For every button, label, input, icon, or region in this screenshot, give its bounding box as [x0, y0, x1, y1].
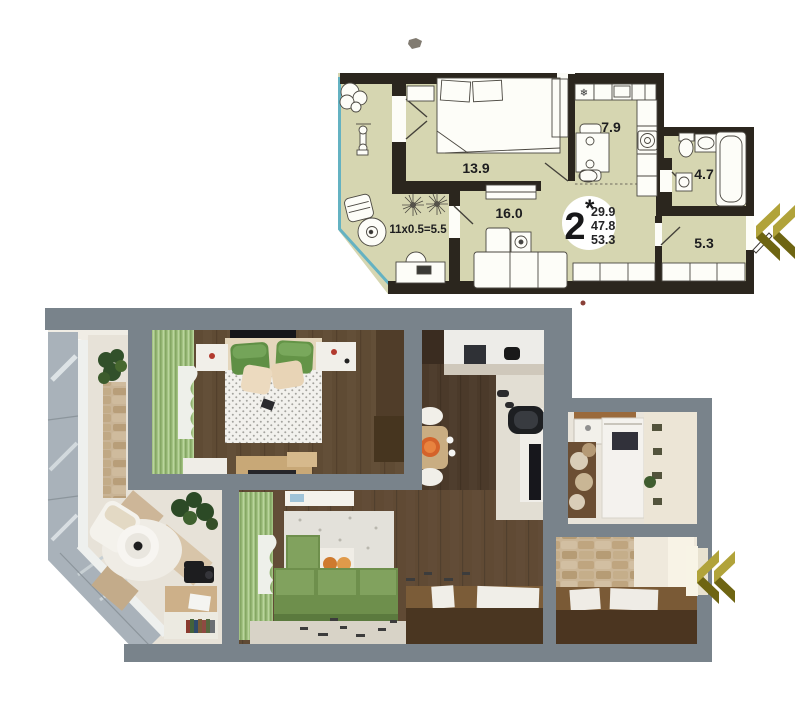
svg-text:7.9: 7.9 — [601, 119, 621, 135]
svg-text:11x0.5=5.5: 11x0.5=5.5 — [389, 224, 447, 236]
svg-text:47.8: 47.8 — [591, 219, 615, 233]
svg-text:16.0: 16.0 — [495, 205, 522, 221]
svg-text:❄: ❄ — [580, 88, 588, 99]
svg-text:53.3: 53.3 — [591, 233, 615, 247]
svg-text:5.3: 5.3 — [694, 235, 714, 251]
svg-text:13.9: 13.9 — [462, 160, 489, 176]
svg-text:29.9: 29.9 — [591, 205, 615, 219]
svg-text:2: 2 — [564, 206, 585, 248]
svg-text:4.7: 4.7 — [694, 166, 714, 182]
